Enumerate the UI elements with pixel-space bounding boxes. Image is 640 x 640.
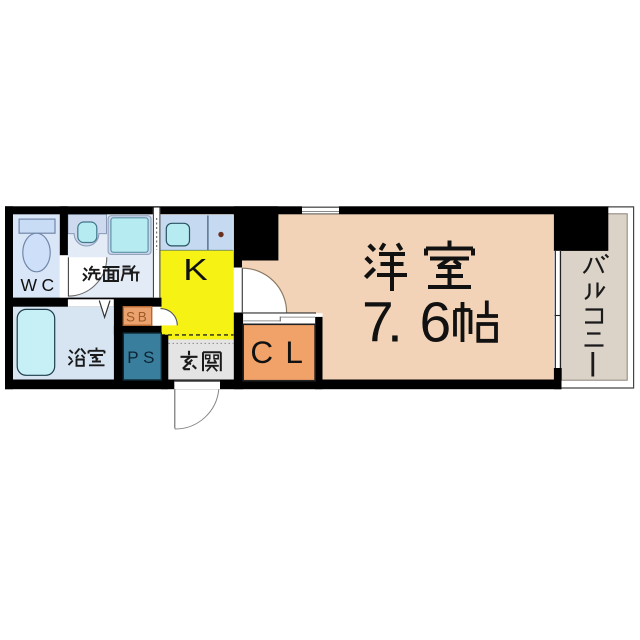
svg-text:WC: WC [21, 275, 59, 295]
svg-text:K: K [183, 254, 208, 287]
svg-text:SB: SB [126, 309, 150, 324]
svg-text:PS: PS [127, 348, 159, 367]
svg-text:.: . [387, 291, 403, 355]
svg-text:CL: CL [250, 334, 315, 370]
svg-text:6: 6 [420, 291, 452, 355]
